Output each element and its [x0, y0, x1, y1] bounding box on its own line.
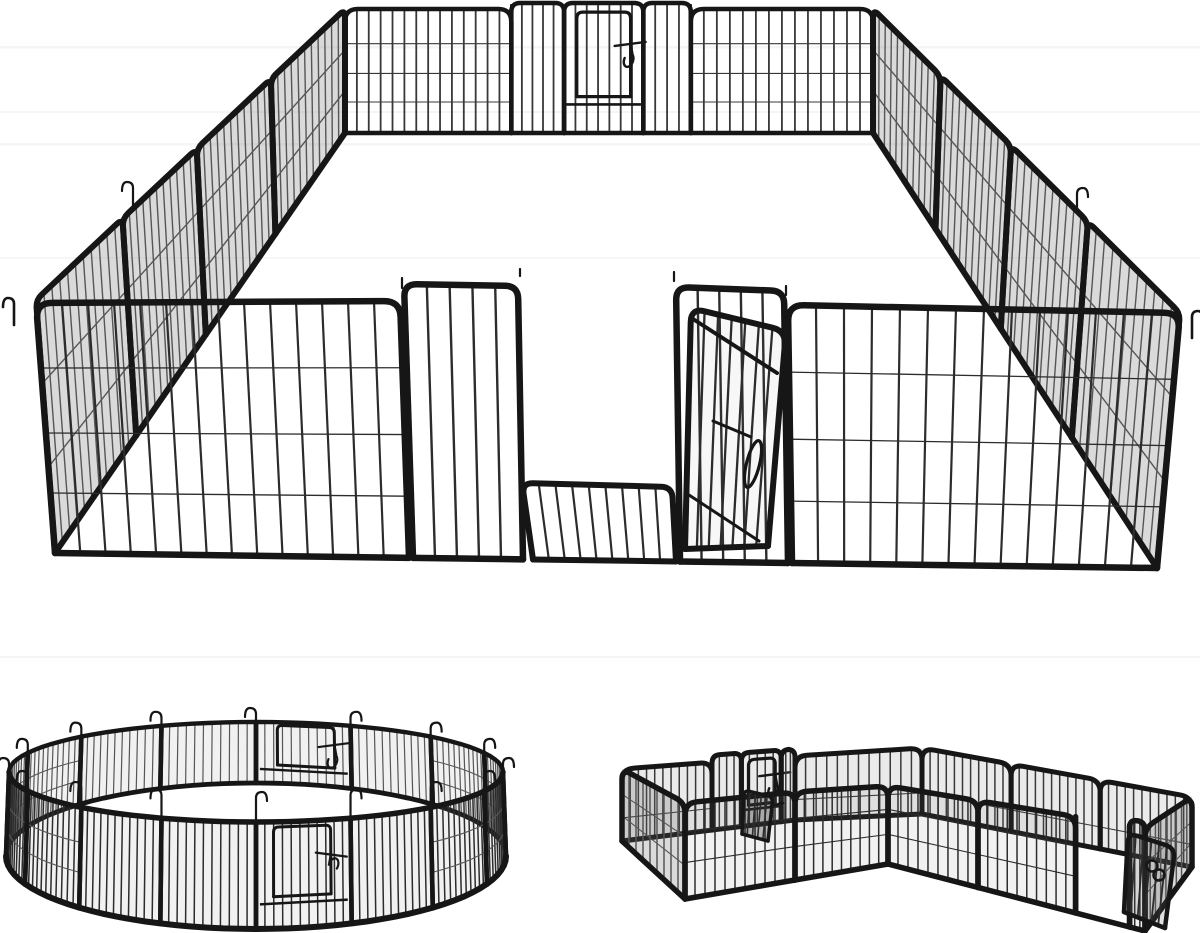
- ring-panel-front: [160, 818, 256, 929]
- product-image: [0, 0, 1200, 933]
- ring-panel-front: [6, 772, 28, 884]
- ring-panel-back: [160, 722, 256, 789]
- l-shaped-pen: [622, 748, 1192, 931]
- anchor-hook-pin: [122, 182, 133, 206]
- rect-left-wall: [36, 9, 345, 553]
- lshape-front-mid-wall: [795, 786, 888, 880]
- rect-front-gate-door-open: [685, 308, 786, 549]
- playpen-illustration: [0, 0, 1200, 933]
- ring-panel-front: [25, 791, 81, 908]
- anchor-hook-pin: [1192, 311, 1200, 338]
- ring-panel-front: [256, 818, 352, 929]
- rect-right-wall: [873, 9, 1180, 568]
- ring-panel-back: [351, 726, 433, 805]
- lshape-front-left-wall: [685, 792, 795, 899]
- anchor-hook-pin: [1077, 188, 1088, 212]
- ring-panel-front: [79, 807, 161, 923]
- circular-pen: [0, 708, 514, 929]
- ring-panel-back: [256, 722, 352, 789]
- lshape-front-gate-door-open: [1124, 833, 1175, 928]
- anchor-hook-pin: [3, 298, 14, 325]
- ring-panel-back: [79, 726, 161, 805]
- rect-back-wall: [345, 3, 873, 133]
- rectangular-pen: [3, 3, 1200, 568]
- ring-panel-front: [351, 807, 433, 923]
- ring-panel-front: [431, 791, 487, 908]
- gate-door: [566, 12, 645, 104]
